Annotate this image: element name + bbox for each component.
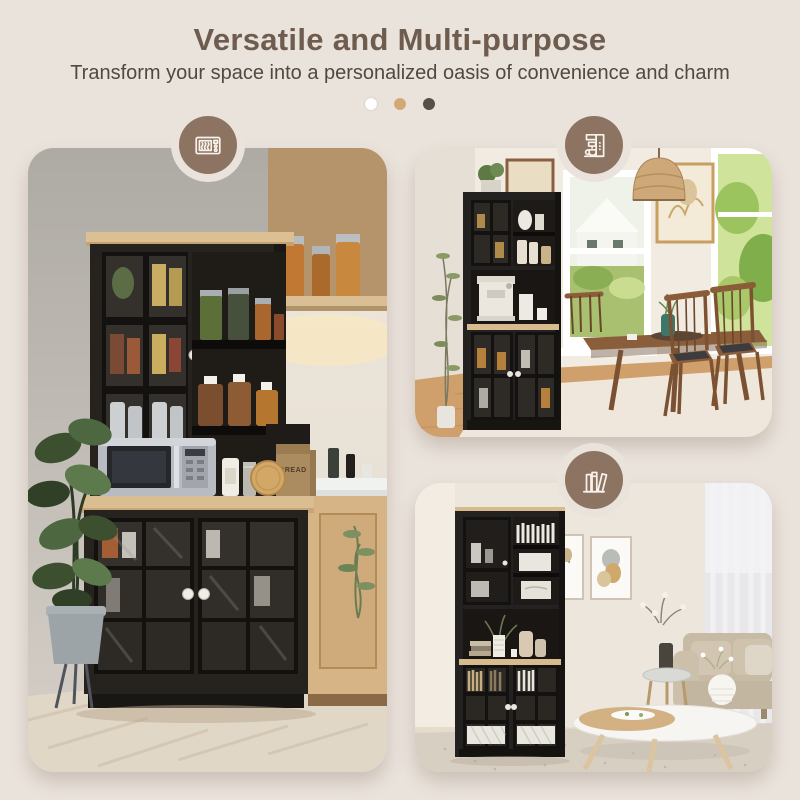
counter-canisters [222,458,285,496]
door-knob [199,589,210,600]
sofa-pillow [745,645,772,675]
dining-room-badge-circle [565,116,623,174]
kitchen-panel: BREAD [28,148,387,772]
kitchen-badge-circle [179,116,237,174]
living-room-badge [557,443,631,517]
coffee-maker-alcove [471,270,555,324]
door-knob [183,589,194,600]
dining-room-badge [557,108,631,182]
living-room-scene [415,483,772,772]
cabinet-alcove [463,609,559,659]
door-knob [505,704,511,710]
microwave-icon [193,130,223,160]
art-frame-2 [591,537,631,599]
carousel-dots [0,98,800,110]
dining-room-panel [415,148,772,437]
door-knob [511,704,517,710]
dining-room-scene [415,148,772,437]
cabinet-upper [471,200,555,266]
kitchen-scene: BREAD [28,148,387,772]
coffee-maker-icon [579,130,609,160]
kitchen-base-cabinet [76,510,316,723]
dining-room-photo [415,148,772,437]
hutch-glass-door [102,252,199,458]
carousel-dot-2[interactable] [394,98,406,110]
carousel-dot-3[interactable] [423,98,435,110]
door-knob [503,561,508,566]
living-room-badge-circle [565,451,623,509]
cabinet-top-section [463,517,559,605]
living-room-panel [415,483,772,772]
living-cabinet [450,507,570,766]
page-title: Versatile and Multi-purpose [0,22,800,58]
carousel-dot-1[interactable] [365,98,377,110]
books-icon [579,465,609,495]
kitchen-side-cabinet [304,448,387,706]
page-subtitle: Transform your space into a personalized… [0,62,800,85]
marble-countertop [304,478,387,492]
microwave [98,438,216,496]
door-knob [507,371,513,377]
dining-cabinet [463,160,561,430]
kitchen-badge [171,108,245,182]
kitchen-photo: BREAD [28,148,387,772]
door-knob [515,371,521,377]
serving-tray [611,710,655,720]
living-room-photo [415,483,772,772]
